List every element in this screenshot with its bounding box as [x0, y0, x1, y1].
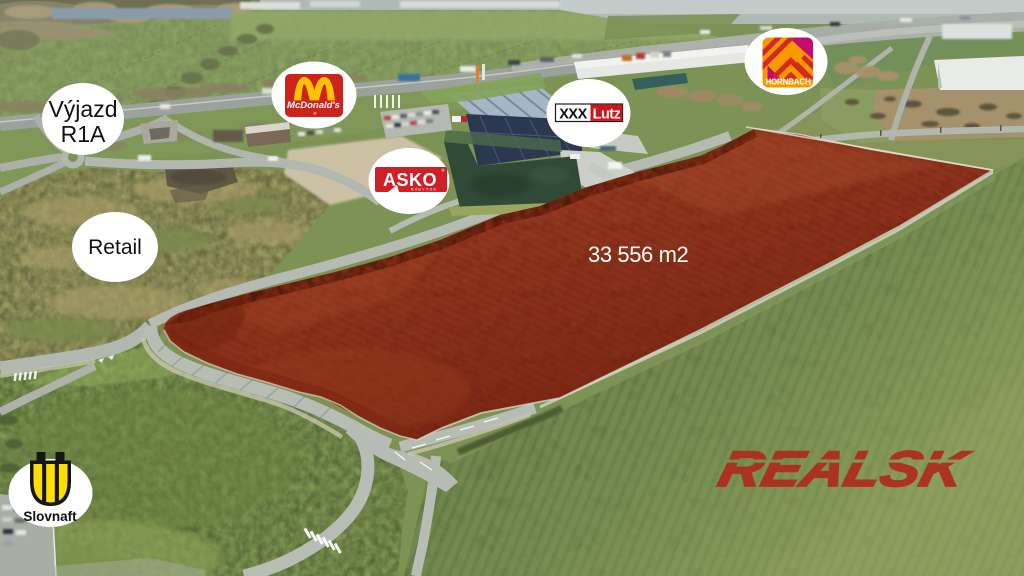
svg-text:Výjazd: Výjazd	[48, 96, 117, 122]
svg-text:REALSK: REALSK	[713, 441, 975, 497]
svg-text:Retail: Retail	[88, 236, 142, 259]
svg-text:Lutz: Lutz	[593, 107, 621, 123]
svg-text:McDonald's: McDonald's	[287, 100, 340, 111]
svg-text:XXX: XXX	[559, 107, 587, 123]
svg-text:33 556 m2: 33 556 m2	[588, 242, 689, 267]
svg-text:NÁBYTOK: NÁBYTOK	[411, 188, 437, 192]
svg-text:®: ®	[314, 111, 317, 116]
svg-text:HORNBACH: HORNBACH	[765, 78, 810, 87]
svg-text:R1A: R1A	[61, 121, 106, 147]
svg-text:Slovnaft: Slovnaft	[23, 509, 77, 524]
